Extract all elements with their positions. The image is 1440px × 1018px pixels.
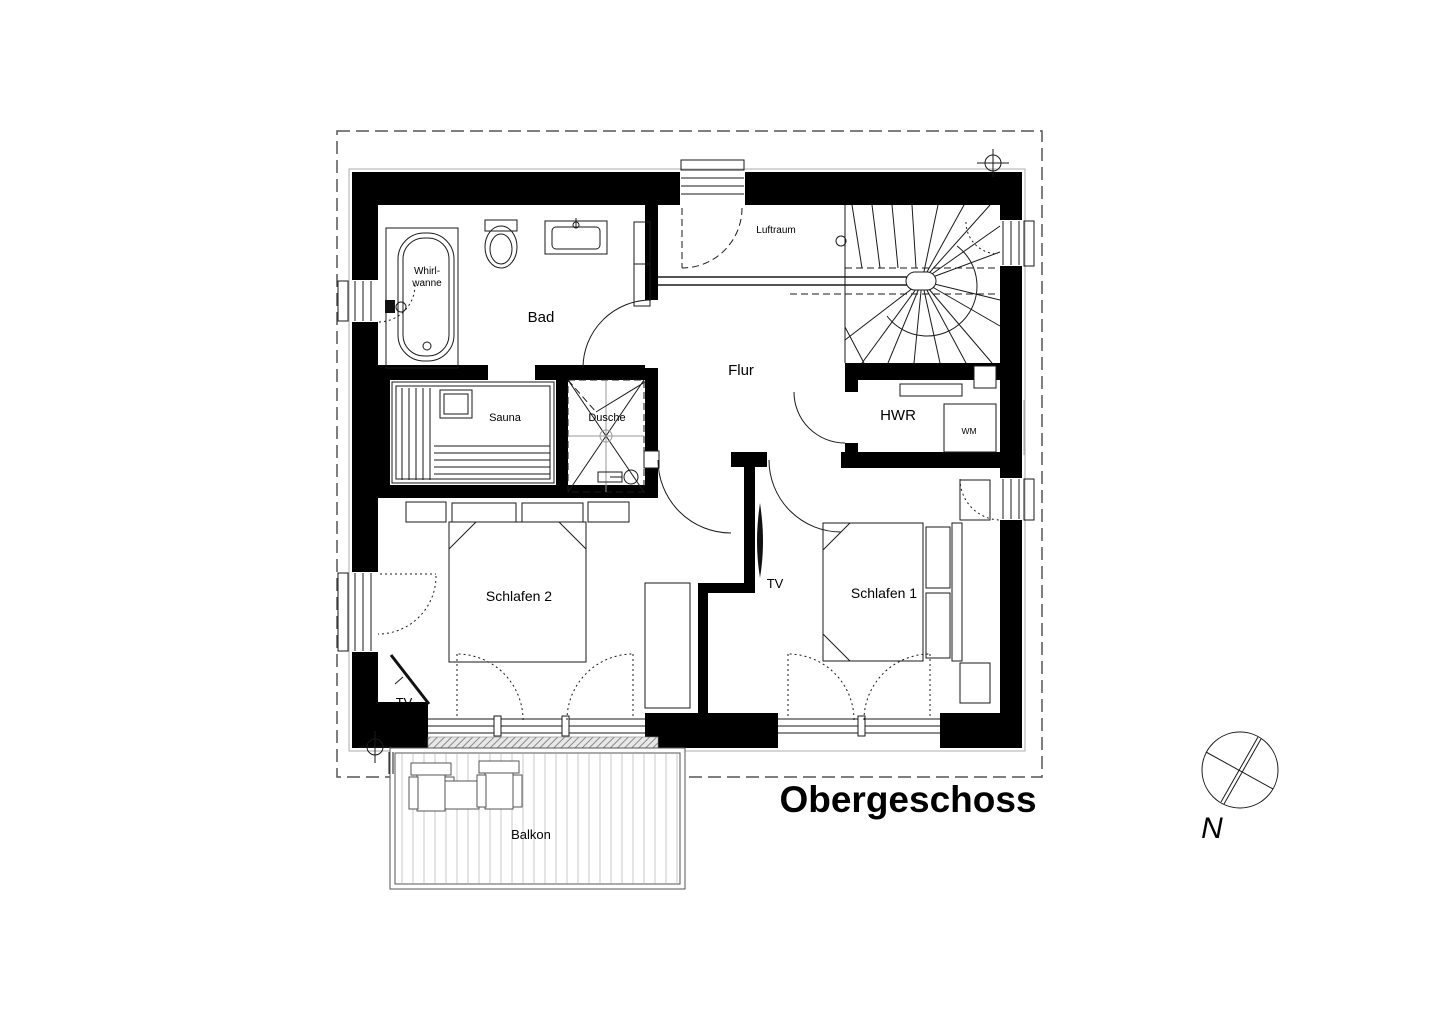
nightstand-icon: [588, 502, 629, 522]
headboard: [952, 523, 962, 661]
sauna-label: Sauna: [489, 412, 522, 424]
balcony-door-swing-right: [567, 654, 633, 720]
north-label: N: [1201, 812, 1223, 845]
pillow-icon: [926, 527, 950, 588]
sauna-heater-icon: [440, 390, 472, 418]
room-schlafen2: Schlafen 2 TV: [391, 502, 690, 710]
balcony: Balkon: [390, 748, 685, 889]
room-schlafen1: Schlafen 1 TV: [757, 480, 990, 703]
luftraum-window-swing: [682, 208, 742, 268]
nightstand-icon: [406, 502, 446, 522]
tv-label-schlafen2: TV: [396, 695, 413, 710]
pillow-icon: [452, 503, 516, 522]
dusche-label: Dusche: [588, 412, 625, 424]
whirlpool-label-line1: Whirl-: [414, 266, 440, 277]
faucet-icon: [385, 300, 395, 313]
room-bad: Whirl- wanne Bad: [385, 218, 650, 368]
hwr-label: HWR: [880, 407, 916, 424]
toilet-icon: [485, 220, 517, 268]
door-frame-cap: [644, 451, 659, 468]
sink-icon: [545, 218, 607, 254]
bad-window-swing: [378, 285, 415, 322]
shelf-icon: [900, 384, 962, 396]
flur-label: Flur: [728, 362, 754, 379]
balcony-door-swing-left: [457, 654, 523, 720]
nightstand-icon: [960, 663, 990, 703]
whirlpool-label-line2: wanne: [411, 278, 442, 289]
schlafen2-label: Schlafen 2: [486, 588, 552, 604]
compass-icon: [1202, 732, 1278, 808]
balkon-label: Balkon: [511, 827, 551, 842]
schlafen2-door-arc: [658, 460, 731, 533]
wm-label: WM: [961, 426, 976, 436]
sauna-bench-icon: [402, 388, 550, 480]
balcony-chair-icon: [477, 761, 522, 809]
tv-icon: [757, 503, 763, 578]
pillow-icon: [522, 503, 583, 522]
schlafen2-window-swing: [378, 576, 436, 634]
wardrobe-icon: [645, 583, 690, 708]
bathtub-platform: [386, 228, 458, 368]
nightstand-icon: [960, 480, 990, 520]
bad-label: Bad: [528, 309, 555, 326]
schlafen1-label: Schlafen 1: [851, 585, 917, 601]
room-sauna: Sauna: [392, 382, 554, 483]
stairs-icon: [658, 205, 1000, 363]
shower-door-line: [568, 380, 596, 412]
schlafen1-bottom-window-swing-left: [788, 654, 854, 720]
floorplan-page: Whirl- wanne Bad Sauna: [0, 0, 1440, 1018]
luftraum-label: Luftraum: [756, 225, 795, 236]
schlafen1-window-swing: [960, 479, 1001, 520]
room-dusche: Dusche: [568, 380, 645, 492]
drain-icon: [423, 342, 431, 350]
plan-title: Obergeschoss: [779, 779, 1036, 820]
railing-icon: [658, 272, 936, 290]
pillow-icon: [926, 593, 950, 658]
shower-head-icon: [598, 470, 638, 484]
hwr-door-arc: [794, 392, 845, 443]
schlafen1-door-arc: [769, 460, 841, 532]
threshold-hatch: [428, 737, 658, 749]
shaft: [974, 366, 996, 388]
schlafen1-bottom-window-swing-right: [864, 654, 930, 720]
floorplan-drawing: Whirl- wanne Bad Sauna: [0, 0, 1440, 1018]
room-flur: Flur Luftraum: [728, 225, 796, 379]
bad-door-arc: [583, 300, 651, 368]
tv-label-schlafen1: TV: [767, 576, 784, 591]
balcony-table-icon: [445, 781, 479, 809]
